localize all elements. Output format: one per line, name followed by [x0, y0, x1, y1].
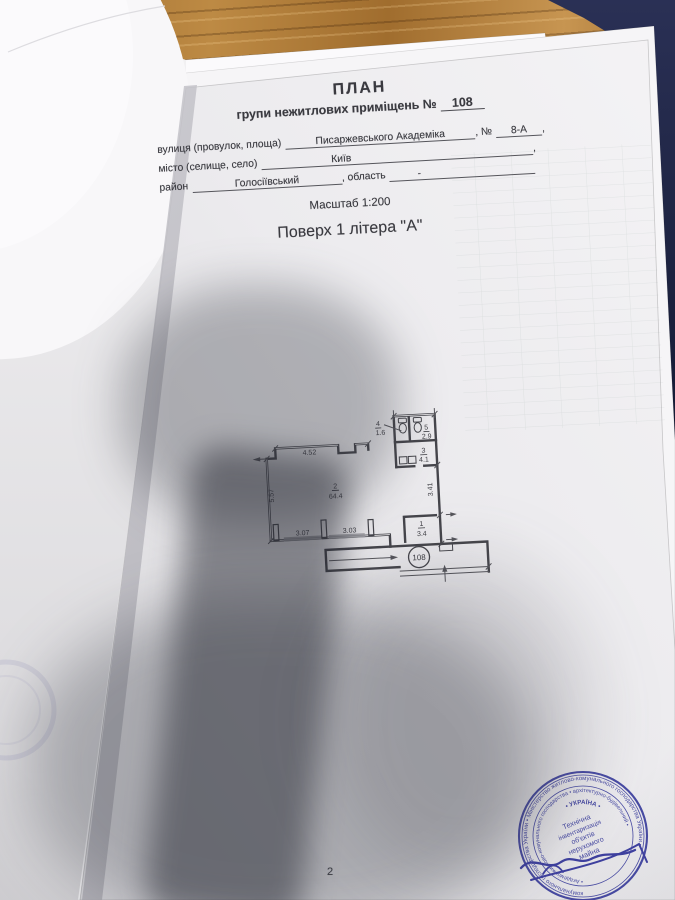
- room5-number: 5: [424, 424, 428, 431]
- dim-bottom-right: 3.03: [343, 527, 357, 535]
- number-label: , №: [475, 126, 496, 139]
- room2-number: 2: [333, 483, 337, 490]
- number-value-line: 8-А: [496, 123, 543, 138]
- room5-area: 2.9: [422, 433, 432, 441]
- city-trailing-comma: ,: [533, 143, 541, 155]
- sink-icons: [399, 456, 416, 464]
- dim-right: 3.41: [427, 482, 435, 496]
- group-number: 108: [440, 94, 485, 111]
- room1-number: 1: [419, 521, 423, 528]
- table-bleed-through: [451, 143, 665, 433]
- room3-area: 4.1: [419, 456, 429, 464]
- building-number: 8-А: [511, 124, 528, 136]
- region-value: -: [417, 168, 421, 179]
- dim-bottom-left: 3.07: [296, 530, 310, 538]
- stamp-center-text: Технічна інвентаризація об'єктів нерухом…: [554, 809, 613, 866]
- dim-top: 4.52: [302, 449, 316, 457]
- district-label: район: [159, 181, 192, 195]
- room1-area: 3.4: [417, 531, 427, 539]
- floor-plan-drawing: 4.52 5.57 3.07 3.03 3.41 2 64.4 4 1.6 5 …: [243, 393, 519, 607]
- photo-scene: ПЛАН групи нежитлових приміщень № 108 ву…: [0, 0, 675, 900]
- dim-left: 5.57: [268, 489, 276, 503]
- unit-circle-label: 108: [412, 553, 426, 563]
- district-value: Голосіївський: [235, 175, 300, 190]
- room4-number: 4: [376, 421, 380, 428]
- stamp-country-arc: • УКРАЇНА •: [564, 799, 601, 810]
- walls: [265, 412, 489, 583]
- page-number: 2: [318, 866, 342, 878]
- round-stamp: комунального господарства України • Міні…: [513, 766, 653, 900]
- room3-number: 3: [421, 448, 425, 455]
- city-value: Київ: [331, 153, 352, 165]
- wall-hollow-lines: [265, 414, 441, 541]
- room4-area: 1.6: [375, 430, 385, 438]
- room2-area: 64.4: [329, 493, 343, 501]
- corridor-lines: [253, 420, 489, 592]
- street-trailing-comma: ,: [542, 123, 550, 135]
